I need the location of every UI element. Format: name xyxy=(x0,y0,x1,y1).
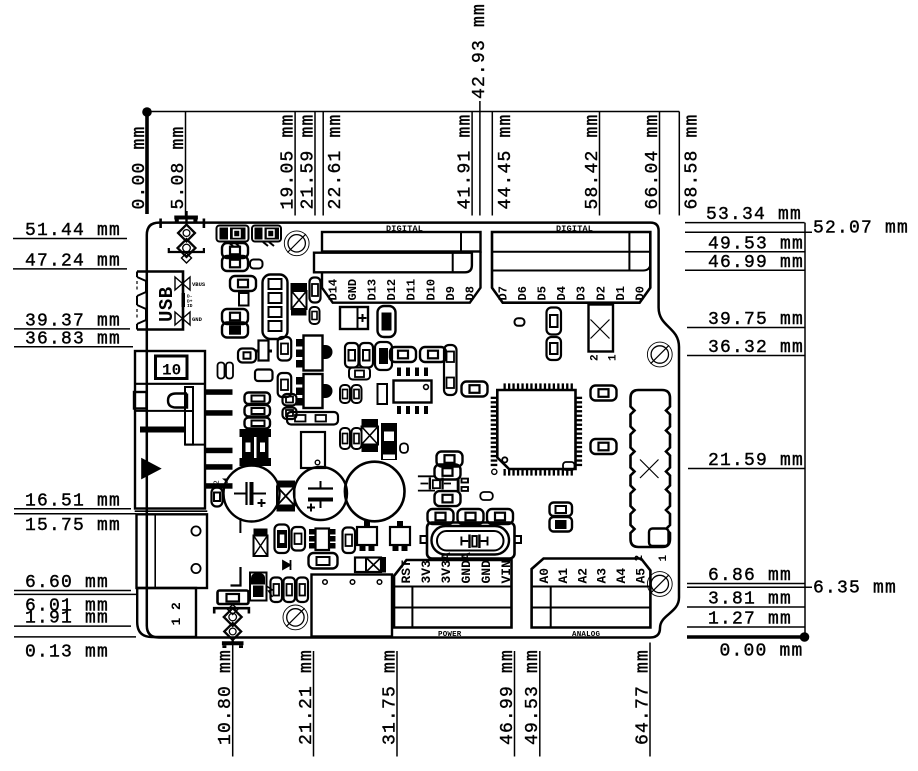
svg-text:6.35 mm: 6.35 mm xyxy=(813,578,897,598)
svg-text:46.99 mm: 46.99 mm xyxy=(708,253,804,273)
svg-text:GND: GND xyxy=(346,279,360,301)
svg-text:22.61 mm: 22.61 mm xyxy=(326,113,346,209)
svg-text:21.59 mm: 21.59 mm xyxy=(708,451,804,471)
svg-text:A1: A1 xyxy=(556,568,571,584)
svg-text:68.58 mm: 68.58 mm xyxy=(683,113,703,209)
svg-text:16.51 mm: 16.51 mm xyxy=(25,491,121,511)
svg-text:D6: D6 xyxy=(516,286,530,300)
svg-text:1: 1 xyxy=(169,618,184,626)
svg-text:2: 2 xyxy=(213,480,222,485)
svg-text:D14: D14 xyxy=(326,279,340,301)
svg-text:46.99 mm: 46.99 mm xyxy=(498,649,518,745)
svg-text:64.77 mm: 64.77 mm xyxy=(633,649,653,745)
svg-text:D10: D10 xyxy=(424,279,438,301)
svg-text:36.32 mm: 36.32 mm xyxy=(708,338,804,358)
svg-text:3V3: 3V3 xyxy=(419,560,434,584)
svg-text:15.75 mm: 15.75 mm xyxy=(25,516,121,536)
svg-text:VIN: VIN xyxy=(499,560,514,583)
svg-text:D3: D3 xyxy=(575,286,589,300)
svg-text:D5: D5 xyxy=(536,286,550,300)
svg-text:D9: D9 xyxy=(444,286,458,300)
svg-text:A4: A4 xyxy=(614,568,629,584)
svg-text:51.44 mm: 51.44 mm xyxy=(25,221,121,241)
svg-text:GNDA: GNDA xyxy=(459,552,474,583)
svg-text:D2: D2 xyxy=(594,286,608,300)
svg-text:D12: D12 xyxy=(385,279,399,301)
svg-text:A2: A2 xyxy=(575,568,590,584)
svg-text:3.81 mm: 3.81 mm xyxy=(708,590,792,610)
svg-text:D13: D13 xyxy=(366,279,380,301)
svg-text:49.53 mm: 49.53 mm xyxy=(708,234,804,254)
svg-text:A3: A3 xyxy=(595,568,610,584)
svg-text:D1: D1 xyxy=(614,286,628,300)
svg-text:GND: GND xyxy=(192,316,203,323)
svg-text:10.80 mm: 10.80 mm xyxy=(216,649,236,745)
svg-text:21.59 mm: 21.59 mm xyxy=(299,113,319,209)
svg-text:1.27 mm: 1.27 mm xyxy=(708,610,792,630)
svg-text:5.08 mm: 5.08 mm xyxy=(169,125,189,209)
svg-text:1: 1 xyxy=(658,555,670,562)
svg-text:49.53 mm: 49.53 mm xyxy=(523,649,543,745)
svg-text:ID: ID xyxy=(187,303,193,309)
svg-text:36.83 mm: 36.83 mm xyxy=(25,329,121,349)
svg-text:2: 2 xyxy=(590,354,602,361)
svg-text:D8: D8 xyxy=(464,286,478,300)
svg-text:52.07 mm: 52.07 mm xyxy=(813,218,909,238)
svg-text:DIGITAL: DIGITAL xyxy=(556,224,593,234)
svg-text:D0: D0 xyxy=(634,286,648,300)
svg-text:ANALOG: ANALOG xyxy=(572,631,601,639)
svg-text:1: 1 xyxy=(608,354,620,361)
svg-text:POWER: POWER xyxy=(438,631,462,639)
svg-text:31.75 mm: 31.75 mm xyxy=(380,649,400,745)
svg-text:39.75 mm: 39.75 mm xyxy=(708,310,804,330)
svg-text:RST: RST xyxy=(399,560,414,584)
svg-text:GND: GND xyxy=(479,560,494,584)
svg-text:0.00 mm: 0.00 mm xyxy=(720,642,804,662)
svg-text:6.60 mm: 6.60 mm xyxy=(25,573,109,593)
svg-text:2: 2 xyxy=(169,602,184,610)
svg-text:6.86 mm: 6.86 mm xyxy=(708,566,792,586)
svg-text:0.00 mm: 0.00 mm xyxy=(130,125,150,209)
svg-text:DIGITAL: DIGITAL xyxy=(386,224,423,234)
svg-text:0.13 mm: 0.13 mm xyxy=(25,643,109,663)
svg-text:58.42 mm: 58.42 mm xyxy=(583,113,603,209)
svg-text:41.91 mm: 41.91 mm xyxy=(456,113,476,209)
svg-text:D7: D7 xyxy=(496,286,510,300)
svg-text:1.91 mm: 1.91 mm xyxy=(25,609,109,629)
svg-text:2: 2 xyxy=(634,555,646,562)
svg-text:3V3A: 3V3A xyxy=(439,552,454,583)
svg-text:42.93 mm: 42.93 mm xyxy=(470,3,490,99)
svg-text:21.21 mm: 21.21 mm xyxy=(297,649,317,745)
svg-text:44.45 mm: 44.45 mm xyxy=(496,113,516,209)
svg-text:A5: A5 xyxy=(633,568,648,584)
svg-text:10: 10 xyxy=(162,362,181,380)
svg-text:VBUS: VBUS xyxy=(192,281,206,288)
svg-text:53.34 mm: 53.34 mm xyxy=(706,205,802,225)
svg-text:D11: D11 xyxy=(405,279,419,301)
svg-text:19.05 mm: 19.05 mm xyxy=(279,113,299,209)
svg-text:66.04 mm: 66.04 mm xyxy=(643,113,663,209)
svg-text:A0: A0 xyxy=(537,568,552,584)
svg-text:47.24 mm: 47.24 mm xyxy=(25,251,121,271)
svg-text:D4: D4 xyxy=(555,286,569,300)
